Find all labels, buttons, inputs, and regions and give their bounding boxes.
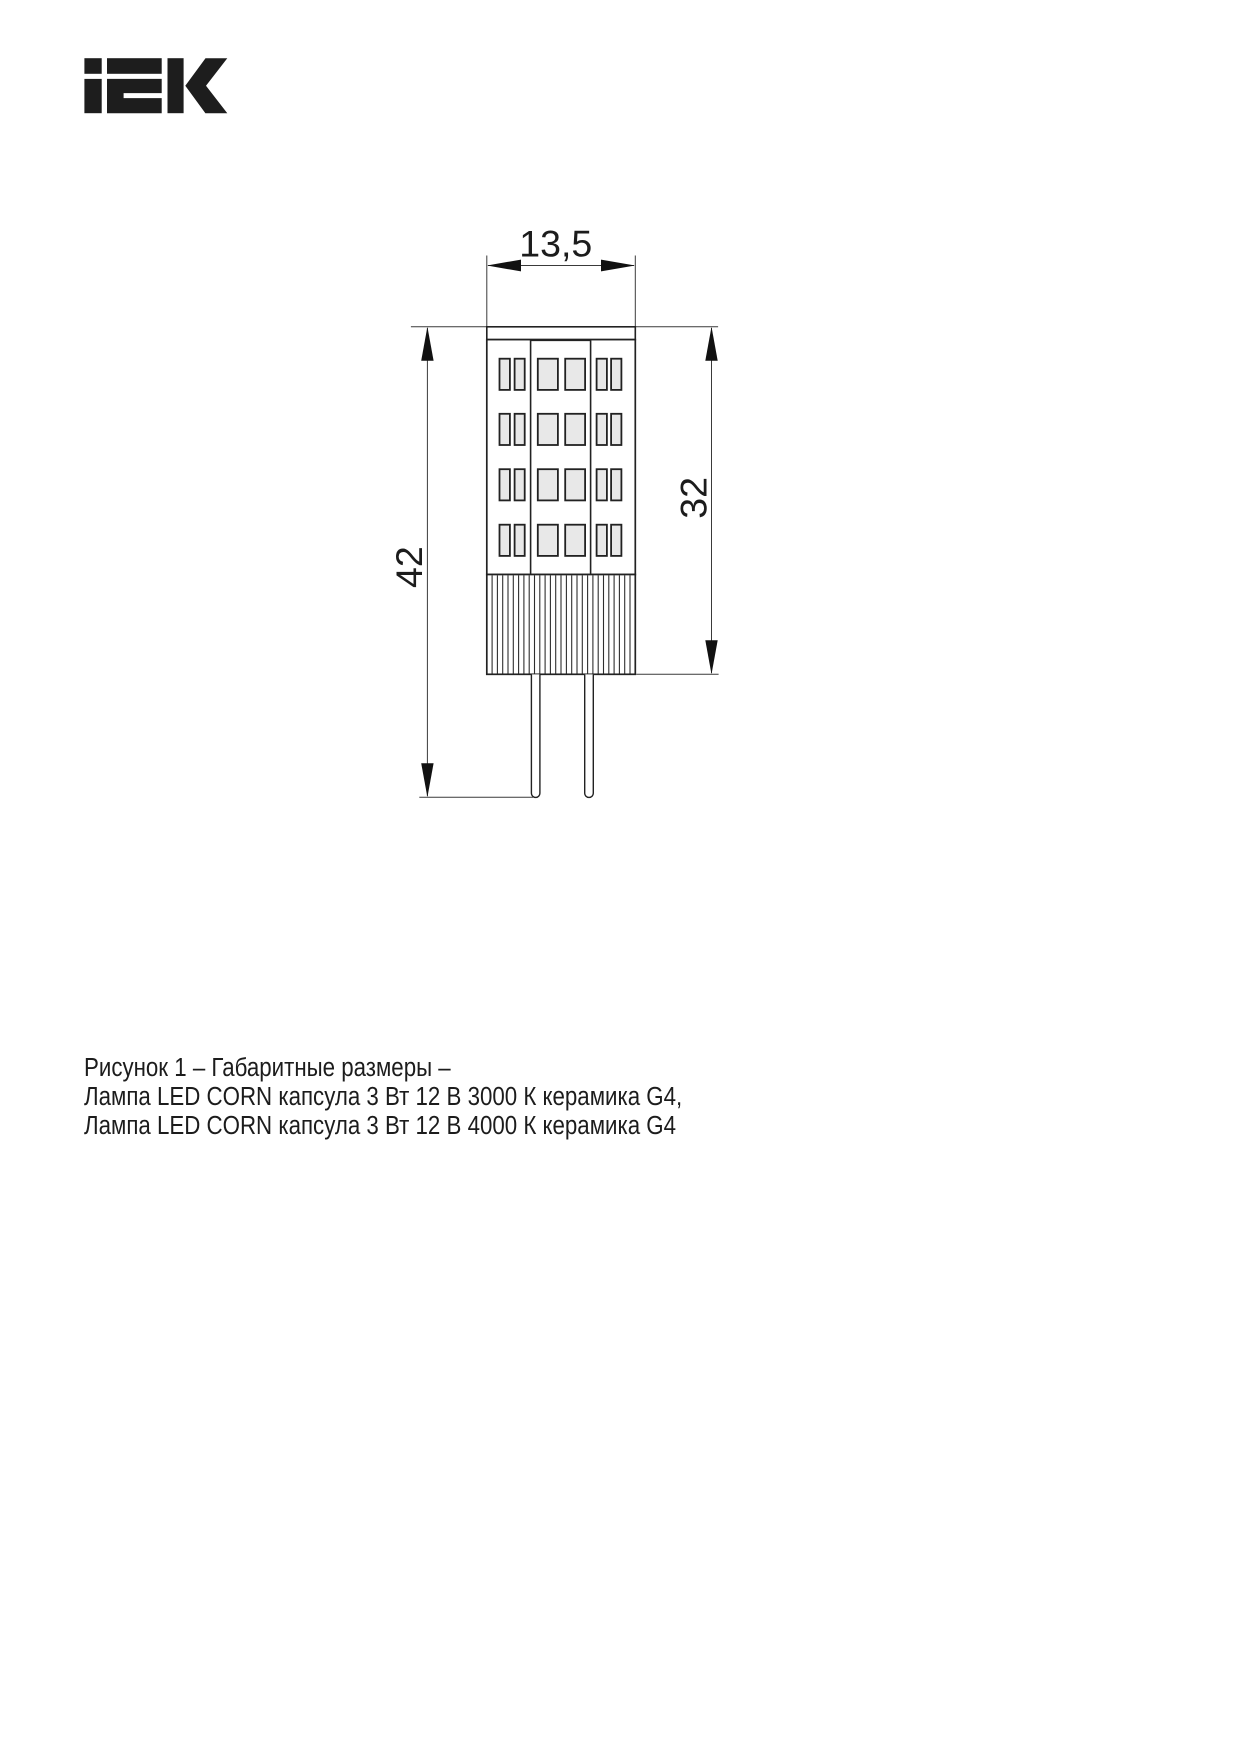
svg-text:42: 42 xyxy=(388,546,430,588)
svg-text:13,5: 13,5 xyxy=(519,222,592,264)
svg-text:32: 32 xyxy=(672,477,714,519)
